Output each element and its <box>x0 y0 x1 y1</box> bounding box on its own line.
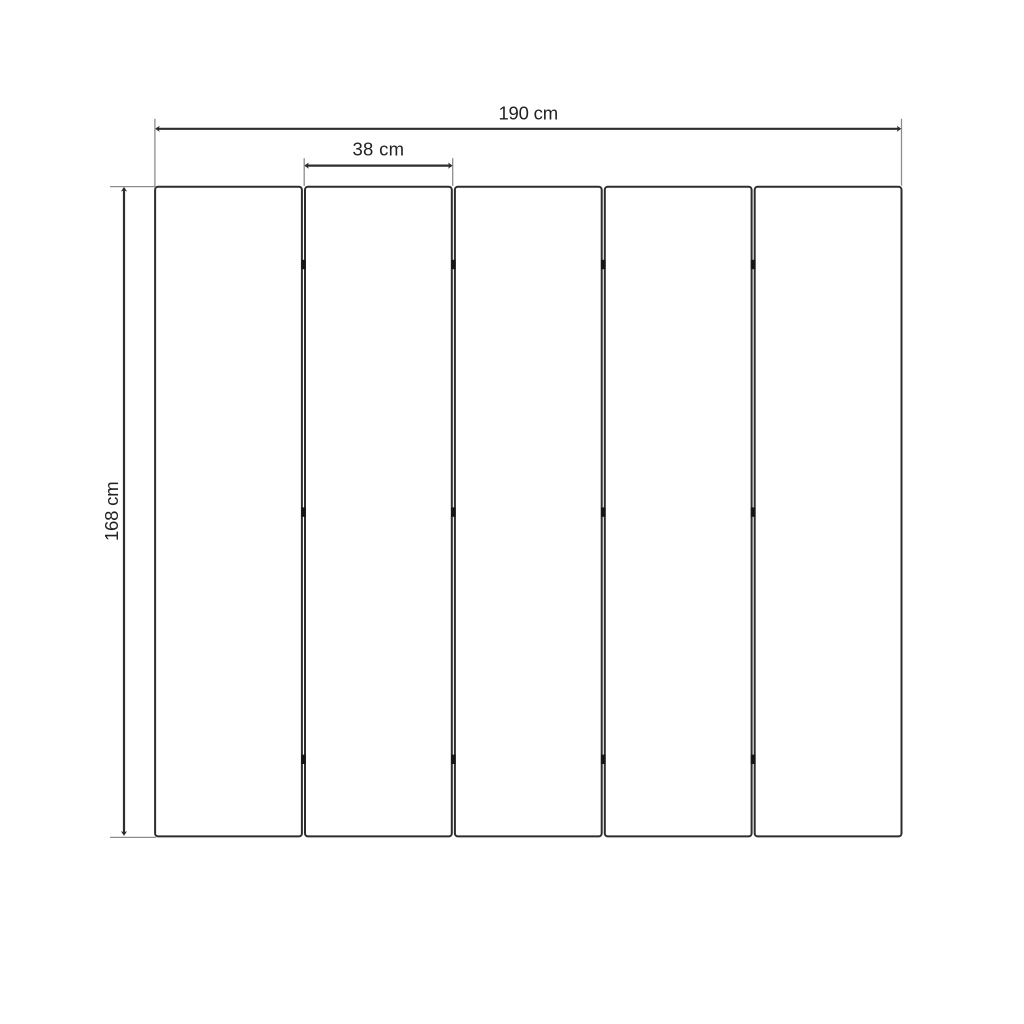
svg-text:168 cm: 168 cm <box>101 482 122 541</box>
svg-text:38 cm: 38 cm <box>352 139 404 160</box>
svg-text:190 cm: 190 cm <box>498 102 557 123</box>
